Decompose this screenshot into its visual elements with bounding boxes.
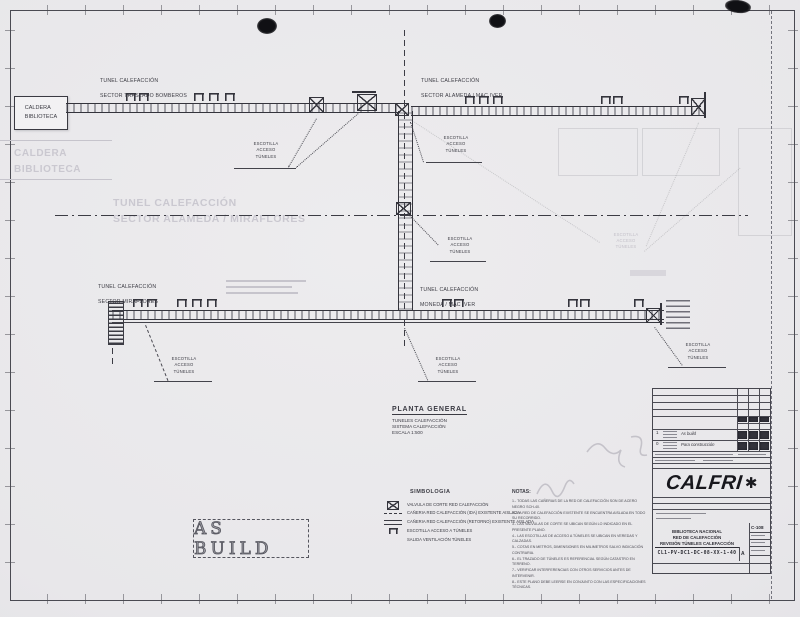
legend-row: ESCOTILLA ACCESO A TÚNELES — [383, 528, 472, 534]
rev-number: 0 — [656, 441, 659, 446]
right-margin-dashed-line — [771, 11, 772, 599]
note-line: 7.- VERIFICAR INTERFERENCIAS CON OTROS S… — [512, 568, 647, 580]
callout-underline — [668, 367, 726, 368]
tb-line — [653, 395, 770, 396]
tb-microtext — [656, 517, 691, 519]
notes-block: NOTAS: 1.- TODAS LAS CAÑERIAS DE LA RED … — [512, 489, 647, 591]
callout-escotilla-3: ESCOTILLA ACCESO TÚNELES — [434, 236, 486, 255]
legend-label: ESCOTILLA ACCESO A TÚNELES — [407, 528, 472, 534]
tb-line — [749, 539, 770, 540]
label-line: TUNEL CALEFACCIÓN — [98, 284, 158, 292]
ghost-box — [738, 128, 792, 236]
legend-label: SALIDA VENTILACIÓN TÚNELES — [407, 537, 471, 543]
label-tunnel-top-right: TUNEL CALEFACCIÓN SECTOR ALAMEDA / MAC I… — [421, 70, 503, 108]
escotilla-hatch-icon — [580, 299, 590, 307]
label-tunnel-lower-mid: TUNEL CALEFACCIÓN MONEDA / MAC IVER — [420, 279, 478, 317]
rev-description: As build — [681, 431, 696, 436]
note-line: 6.- EL TRAZADO DE TÚNELES ES REFERENCIAL… — [512, 557, 647, 569]
label-line: TUNEL CALEFACCIÓN — [420, 287, 478, 295]
punch-hole-right — [489, 14, 506, 28]
end-note-smudge — [666, 299, 690, 329]
ghost-sector-text: TUNEL CALEFACCIÓN SECTOR ALAMEDA / MIRAF… — [113, 196, 306, 228]
title-block: 1 As build 0 Para construcción CALFRI ✱ … — [652, 388, 771, 574]
tb-line — [653, 440, 770, 441]
caption-line: ESCALA 1:500 — [392, 430, 502, 435]
note-line: 2.- LA RED DE CALEFACCIÓN EXISTENTE SE E… — [512, 511, 647, 523]
end-block-dash — [112, 344, 113, 364]
callout-escotilla-4: ESCOTILLA ACCESO TÚNELES — [158, 356, 210, 375]
label-tunnel-lower-left: TUNEL CALEFACCIÓN SECTOR MIRAFLORES — [98, 276, 158, 314]
end-cap-lower-right — [660, 303, 662, 325]
tb-line — [653, 463, 770, 464]
label-line: SECTOR ALAMEDA / MAC IVER — [421, 93, 503, 101]
project-title-line: RED DE CALEFACCIÓN — [655, 535, 739, 540]
callout-escotilla-5: ESCOTILLA ACCESO TÚNELES — [422, 356, 474, 375]
escotilla-hatch-icon — [225, 93, 235, 101]
signature-cell — [738, 417, 747, 422]
valve-top-left-icon — [309, 97, 324, 113]
escotilla-hatch-icon — [634, 299, 644, 307]
escotilla-hatch-icon — [192, 299, 202, 307]
vertical-centerline-top — [404, 26, 405, 106]
escotilla-hatch-icon — [207, 299, 217, 307]
project-title-line: BIBLIOTECA NACIONAL — [655, 529, 739, 534]
drawing-number: CL1-PV-DC1-DC-08-XX-1-40 — [655, 551, 739, 556]
callout-escotilla-1: ESCOTILLA ACCESO TÚNELES — [240, 141, 292, 160]
legend-label: VALVULA DE CORTE RED CALEFACCIÓN — [407, 502, 488, 508]
scanned-drawing-sheet: CALDERA BIBLIOTECA TUNEL CALEFACCIÓN SEC… — [0, 0, 800, 617]
tb-line — [749, 532, 770, 533]
signature-cell — [749, 417, 758, 422]
ghost-escotilla-label: ESCOTILLA ACCESO TÚNELES — [600, 232, 652, 250]
callout-escotilla-2: ESCOTILLA ACCESO TÚNELES — [430, 135, 482, 154]
label-line: SECTOR TRASLADO BOMBEROS — [100, 93, 187, 101]
valve-lower-right-end-icon — [646, 308, 661, 323]
tb-line — [653, 429, 770, 430]
note-line: 1.- TODAS LAS CAÑERIAS DE LA RED DE CALE… — [512, 499, 647, 511]
tb-line — [749, 555, 770, 556]
signature-cell — [749, 431, 758, 439]
signature-cell — [738, 431, 747, 439]
tb-microtext — [656, 512, 706, 514]
drawing-caption: PLANTA GENERAL TUNELES CALEFACCIÓN SISTE… — [392, 398, 502, 435]
callout-escotilla-6: ESCOTILLA ACCESO TÚNELES — [672, 342, 724, 361]
label-line: TUNEL CALEFACCIÓN — [421, 78, 503, 86]
legend-row: CAÑERIA RED CALEFACCIÓN (IDA) EXISTENTE … — [383, 510, 520, 516]
valve-icon — [383, 501, 403, 510]
tb-line — [653, 497, 770, 498]
ghost-par-line — [226, 292, 298, 294]
label-tunnel-top-left: TUNEL CALEFACCIÓN SECTOR TRASLADO BOMBER… — [100, 70, 187, 108]
tb-line — [653, 503, 770, 504]
escotilla-hatch-icon — [194, 93, 204, 101]
signature-cell — [760, 442, 769, 450]
escotilla-hatch-icon — [679, 96, 689, 104]
calfri-star-icon: ✱ — [745, 474, 758, 492]
caption-line: SISTEMA CALEFACCIÓN — [392, 424, 502, 429]
calfri-logo-text: CALFRI — [664, 472, 743, 495]
sheet-code: C-108 — [751, 525, 764, 530]
tb-microtext — [738, 453, 766, 455]
valve-plate — [352, 91, 376, 93]
tb-microtext — [751, 534, 765, 536]
ghost-par-line — [226, 280, 306, 282]
ghost-line — [0, 140, 112, 141]
escotilla-hatch-icon — [177, 299, 187, 307]
punch-hole-left — [257, 18, 277, 34]
tb-line — [653, 402, 770, 403]
callout-underline — [426, 162, 482, 163]
hatch-icon — [383, 528, 403, 534]
tb-line — [737, 423, 770, 424]
ghost-box — [558, 128, 638, 176]
caption-line: TUNELES CALEFACCIÓN — [392, 418, 502, 423]
tb-microtext — [655, 459, 695, 461]
tb-line — [653, 563, 770, 564]
escotilla-hatch-icon — [613, 96, 623, 104]
rev-date-stamp — [663, 442, 677, 449]
label-line: TUNEL CALEFACCIÓN — [100, 78, 187, 86]
callout-underline — [234, 168, 296, 169]
rev-number: 1 — [656, 430, 659, 435]
note-line: 4.- LAS ESCOTILLAS DE ACCESO A TÚNELES S… — [512, 534, 647, 546]
tb-microtext — [703, 459, 733, 461]
rev-date-stamp — [663, 431, 677, 438]
caption-title: PLANTA GENERAL — [392, 406, 467, 415]
notes-title: NOTAS: — [512, 489, 647, 495]
signature-cell — [760, 417, 769, 422]
callout-underline — [154, 381, 212, 382]
revision-letter: A — [741, 551, 745, 557]
valve-junction-icon — [395, 103, 409, 116]
ghost-word — [630, 270, 666, 276]
ghost-caldera-text: CALDERA BIBLIOTECA — [14, 146, 81, 178]
signature-cell — [738, 442, 747, 450]
tb-vline — [749, 523, 750, 573]
tb-line — [653, 451, 770, 452]
tunnel-run-lower — [112, 310, 664, 320]
signature-cell — [749, 442, 758, 450]
label-line: MONEDA / MAC IVER — [420, 302, 478, 310]
as-build-stamp: AS BUILD — [193, 519, 309, 558]
logo-band: CALFRI ✱ — [653, 469, 770, 497]
tb-line — [653, 509, 770, 510]
caldera-box: CALDERA BIBLIOTECA — [14, 96, 68, 130]
dashed-line-icon — [383, 513, 403, 514]
valve-top-mid-icon — [357, 94, 377, 111]
note-line: 3.- LAS VALVULAS DE CORTE SE UBICAN SEGÚ… — [512, 522, 647, 534]
tb-line — [653, 457, 770, 458]
tb-microtext — [655, 453, 733, 455]
note-line: 8.- ESTE PLANO DEBE LEERSE EN CONJUNTO C… — [512, 580, 647, 592]
caldera-box-label: CALDERA BIBLIOTECA — [25, 104, 57, 122]
note-line: 5.- COTAS EN METROS, DIMENSIONES EN MILI… — [512, 545, 647, 557]
rev-description: Para construcción — [681, 442, 715, 447]
callout-underline — [418, 381, 476, 382]
solid-line-icon — [383, 520, 403, 525]
legend-row: SALIDA VENTILACIÓN TÚNELES — [383, 537, 471, 543]
legend-row: VALVULA DE CORTE RED CALEFACCIÓN — [383, 501, 488, 510]
tb-line — [653, 409, 770, 410]
ghost-line — [0, 179, 112, 180]
ghost-par-line — [226, 286, 292, 288]
label-line: SECTOR MIRAFLORES — [98, 299, 158, 307]
legend-label: CAÑERIA RED CALEFACCIÓN (IDA) EXISTENTE … — [407, 510, 520, 516]
ghost-box — [642, 128, 720, 176]
escotilla-hatch-icon — [209, 93, 219, 101]
tb-line — [749, 546, 770, 547]
escotilla-hatch-icon — [601, 96, 611, 104]
signature-cell — [760, 431, 769, 439]
tb-microtext — [751, 549, 765, 551]
callout-underline — [430, 261, 486, 262]
tb-vline — [739, 547, 740, 561]
legend-title: SIMBOLOGIA — [410, 489, 450, 495]
tb-microtext — [751, 541, 765, 543]
project-title-line: REVISIÓN TÚNELES CALEFACCIÓN — [655, 541, 739, 548]
escotilla-hatch-icon — [568, 299, 578, 307]
end-cap-top-right — [704, 92, 706, 118]
tunnel-lower-underline — [112, 322, 664, 323]
